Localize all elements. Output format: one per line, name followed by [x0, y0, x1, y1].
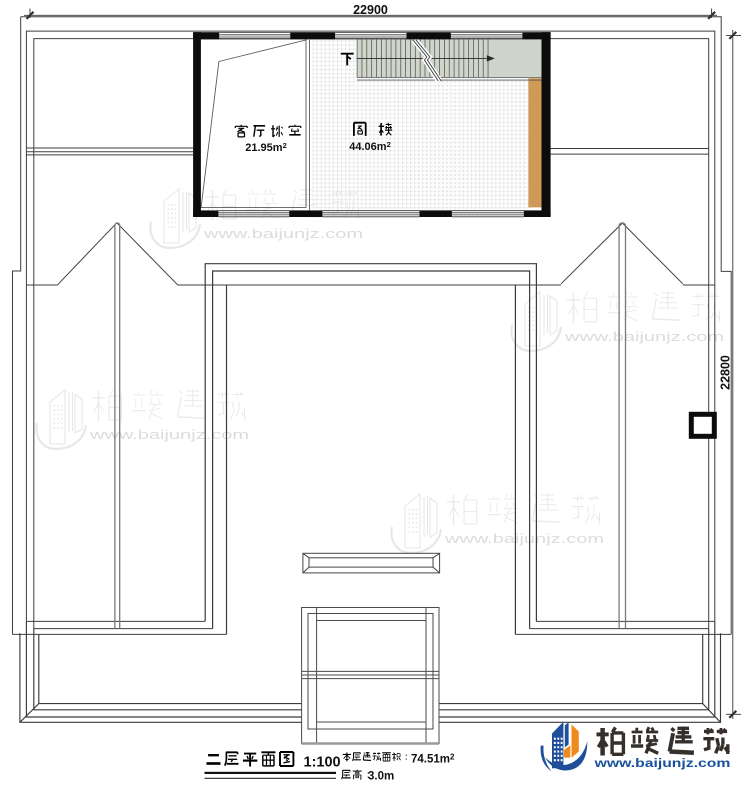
svg-text:www.baijunjz.com: www.baijunjz.com — [563, 329, 724, 344]
svg-text:1:100: 1:100 — [304, 754, 341, 770]
svg-text:www.baijunjz.com: www.baijunjz.com — [202, 226, 363, 241]
svg-text:44.06m2: 44.06m2 — [349, 140, 390, 153]
svg-text:3.0m: 3.0m — [368, 771, 394, 783]
svg-text:www.baijunjz.com: www.baijunjz.com — [443, 531, 604, 546]
svg-text:www.baijunjz.com: www.baijunjz.com — [593, 756, 730, 770]
svg-text:22800: 22800 — [719, 355, 733, 390]
svg-text:21.95m2: 21.95m2 — [245, 141, 286, 154]
svg-text:22900: 22900 — [353, 3, 388, 17]
svg-text:74.51m2: 74.51m2 — [411, 753, 455, 766]
svg-text:www.baijunjz.com: www.baijunjz.com — [88, 427, 249, 442]
